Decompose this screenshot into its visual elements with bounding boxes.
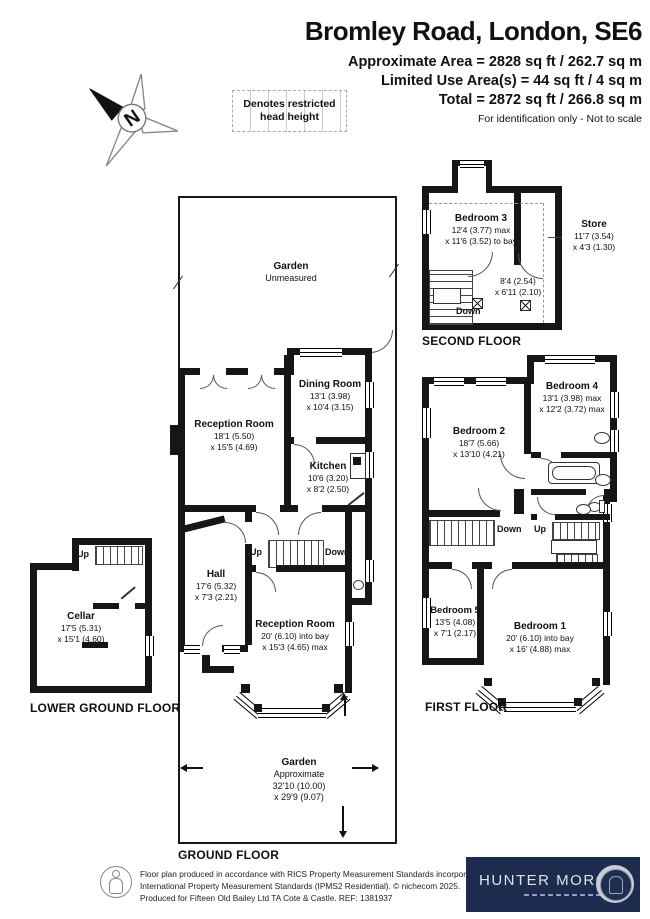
room-label-reception-1: Reception Room 18'1 (5.50) x 15'5 (4.69) xyxy=(188,418,280,453)
leader-line xyxy=(548,237,562,238)
room-name: Garden xyxy=(252,756,346,769)
room-dim: 8'4 (2.54) xyxy=(486,276,550,287)
room-dim: x 10'4 (3.15) xyxy=(296,402,364,413)
wall xyxy=(610,355,617,495)
stairs xyxy=(429,520,495,546)
wall xyxy=(422,510,500,517)
wall xyxy=(486,160,492,188)
room-name: Bedroom 1 xyxy=(492,620,588,633)
window xyxy=(460,160,484,168)
wall xyxy=(422,186,429,330)
entrance-arrow-head xyxy=(340,693,348,700)
room-label-bedroom-2: Bedroom 2 18'7 (5.66) x 13'10 (4.21) xyxy=(435,425,523,460)
door-arc xyxy=(537,497,555,515)
stair-landing xyxy=(551,540,597,554)
stairs-up-label: Up xyxy=(77,549,89,559)
room-label-kitchen: Kitchen 10'6 (3.20) x 8'2 (2.50) xyxy=(296,460,360,495)
door-leaf xyxy=(121,586,136,599)
wall xyxy=(30,563,37,693)
window xyxy=(365,382,374,408)
dim-arrow-down xyxy=(339,831,347,838)
stair-landing xyxy=(433,288,461,304)
wall xyxy=(291,437,294,444)
page-title: Bromley Road, London, SE6 xyxy=(250,16,642,47)
room-dim: 32'10 (10.00) xyxy=(252,781,346,793)
wall xyxy=(30,563,79,570)
bay-post xyxy=(322,704,330,712)
room-dim: 20' (6.10) into bay xyxy=(492,633,588,644)
wall xyxy=(145,538,152,693)
wall xyxy=(93,603,119,609)
restricted-height-line xyxy=(543,203,544,323)
room-dim: x 29'9 (9.07) xyxy=(252,792,346,804)
stairs-down-label: Down xyxy=(497,524,522,534)
wall xyxy=(512,562,610,569)
wall xyxy=(531,452,541,458)
room-note: Unmeasured xyxy=(246,273,336,285)
wall xyxy=(345,512,352,598)
room-name: Reception Room xyxy=(188,418,280,431)
room-label-store: Store 11'7 (3.54) x 4'3 (1.30) xyxy=(562,218,626,253)
wall xyxy=(135,603,145,609)
rooflight-icon xyxy=(520,300,531,311)
room-dim: x 15'3 (4.65) max xyxy=(247,642,343,653)
room-label-cellar: Cellar 17'5 (5.31) x 15'1 (4.60) xyxy=(44,610,118,645)
room-name: Dining Room xyxy=(296,378,364,391)
logo-crest-shield xyxy=(609,876,623,894)
room-dim: x 7'3 (2.21) xyxy=(186,592,246,603)
room-dim: 12'4 (3.77) max xyxy=(438,225,524,236)
window xyxy=(300,348,342,357)
restricted-height-line xyxy=(429,203,543,204)
landing-dims: 8'4 (2.54) x 6'11 (2.10) xyxy=(486,276,550,298)
room-dim: 13'1 (3.98) xyxy=(296,391,364,402)
room-dim: x 15'1 (4.60) xyxy=(44,634,118,645)
floorplan-page: Bromley Road, London, SE6 Approximate Ar… xyxy=(0,0,650,919)
second-floor-label: SECOND FLOOR xyxy=(422,334,521,348)
window xyxy=(145,636,154,656)
wall xyxy=(245,512,252,522)
hunter-morgan-logo: HUNTER MORGAN xyxy=(466,857,640,912)
room-dim: 10'6 (3.20) xyxy=(296,473,360,484)
bathtub-icon xyxy=(548,462,600,484)
wall xyxy=(280,505,298,512)
door-arc xyxy=(468,252,493,277)
room-name: Hall xyxy=(186,568,246,581)
room-label-bedroom-5: Bedroom 5 13'5 (4.08) x 7'1 (2.17) xyxy=(427,605,483,639)
wall xyxy=(284,437,291,512)
person-body xyxy=(109,878,123,894)
wall xyxy=(316,437,372,444)
room-dim: x 11'6 (3.52) to bay xyxy=(438,236,524,247)
wall xyxy=(604,489,610,495)
wall xyxy=(422,562,452,569)
bay-post xyxy=(241,684,250,693)
room-label-hall: Hall 17'6 (5.32) x 7'3 (2.21) xyxy=(186,568,246,603)
room-dim: x 6'11 (2.10) xyxy=(486,287,550,298)
dim-arrow-line xyxy=(342,806,344,832)
room-dim: x 16' (4.88) max xyxy=(492,644,588,655)
dim-arrow-right xyxy=(372,764,379,772)
room-label-bedroom-4: Bedroom 4 13'1 (3.98) max x 12'2 (3.72) … xyxy=(530,380,614,415)
room-dim: 17'6 (5.32) xyxy=(186,581,246,592)
bay-window xyxy=(504,702,576,712)
room-dim: x 7'1 (2.17) xyxy=(427,628,483,639)
room-dim: 20' (6.10) into bay xyxy=(247,631,343,642)
wall xyxy=(527,355,545,362)
stairs xyxy=(95,546,143,565)
window xyxy=(184,645,200,654)
approximate-area: Approximate Area = 2828 sq ft / 262.7 sq… xyxy=(250,53,642,72)
room-dim: x 13'10 (4.21) xyxy=(435,449,523,460)
window xyxy=(345,622,354,646)
sink-icon xyxy=(594,432,610,444)
wall xyxy=(472,562,492,569)
door-arc xyxy=(478,488,501,511)
legend-text: Denotes restricted head height xyxy=(233,98,346,123)
room-name: Bedroom 2 xyxy=(435,425,523,438)
wall xyxy=(531,489,586,495)
wall xyxy=(422,658,484,665)
dim-arrow-left xyxy=(180,764,187,772)
garden-bottom-label: Garden Approximate 32'10 (10.00) x 29'9 … xyxy=(252,756,346,804)
room-name: Reception Room xyxy=(247,618,343,631)
room-label-bedroom-1: Bedroom 1 20' (6.10) into bay x 16' (4.8… xyxy=(492,620,588,655)
room-dim: 18'1 (5.50) xyxy=(188,431,280,442)
wall xyxy=(531,514,537,520)
window xyxy=(365,560,374,582)
window xyxy=(545,355,595,364)
wall xyxy=(276,565,345,572)
room-dim: 18'7 (5.66) xyxy=(435,438,523,449)
window xyxy=(224,645,240,654)
door-arc xyxy=(452,569,472,589)
window xyxy=(434,377,464,386)
chimney xyxy=(170,425,178,455)
porch-step xyxy=(202,666,234,673)
room-name: Garden xyxy=(246,260,336,273)
stairs-up-label: Up xyxy=(534,524,546,534)
bay-post xyxy=(574,698,582,706)
first-floor-label: FIRST FLOOR xyxy=(425,700,507,714)
compass-icon: N xyxy=(86,74,178,166)
wall xyxy=(464,377,476,384)
toilet-tank xyxy=(599,500,605,513)
room-name: Bedroom 4 xyxy=(530,380,614,393)
disclaimer-line-3: Produced for Fifteen Old Bailey Ltd TA C… xyxy=(140,892,480,904)
wall xyxy=(486,186,562,193)
room-dim: x 4'3 (1.30) xyxy=(562,242,626,253)
room-dim: 13'5 (4.08) xyxy=(427,617,483,628)
toilet-icon xyxy=(353,580,364,590)
room-label-reception-2: Reception Room 20' (6.10) into bay x 15'… xyxy=(247,618,343,653)
logo-tagline xyxy=(524,894,602,896)
stairs-down-label: Down xyxy=(456,306,481,316)
wall xyxy=(178,505,256,512)
wall xyxy=(561,452,610,458)
room-dim: 13'1 (3.98) max xyxy=(530,393,614,404)
room-dim: x 15'5 (4.69) xyxy=(188,442,280,453)
wall xyxy=(555,186,562,330)
room-name: Bedroom 3 xyxy=(438,212,524,225)
room-dim: 17'5 (5.31) xyxy=(44,623,118,634)
garden-top-label: Garden Unmeasured xyxy=(246,260,336,285)
room-name: Kitchen xyxy=(296,460,360,473)
window xyxy=(422,408,431,438)
wall xyxy=(284,355,291,437)
wall xyxy=(226,368,248,375)
room-label-bedroom-3: Bedroom 3 12'4 (3.77) max x 11'6 (3.52) … xyxy=(438,212,524,247)
sink-icon xyxy=(595,474,611,486)
ground-floor-label: GROUND FLOOR xyxy=(178,848,279,862)
room-dim: x 12'2 (3.72) max xyxy=(530,404,614,415)
bay-post xyxy=(592,678,600,686)
wall xyxy=(72,538,152,545)
room-name: Bedroom 5 xyxy=(427,605,483,617)
window xyxy=(422,210,431,234)
window xyxy=(610,430,619,452)
disclaimer-line-1: Floor plan produced in accordance with R… xyxy=(140,868,480,880)
room-dim: 11'7 (3.54) xyxy=(562,231,626,242)
bay-post xyxy=(334,684,343,693)
bay-post xyxy=(254,704,262,712)
wall xyxy=(452,160,458,188)
limited-use-area: Limited Use Area(s) = 44 sq ft / 4 sq m xyxy=(250,72,642,91)
room-name: Store xyxy=(562,218,626,231)
door-arc xyxy=(492,569,512,589)
person-head xyxy=(112,870,120,878)
wall xyxy=(603,495,610,685)
wall xyxy=(514,489,524,514)
room-note: Approximate xyxy=(252,769,346,781)
window xyxy=(365,452,374,478)
dim-arrow-line xyxy=(352,767,372,769)
disclaimer: Floor plan produced in accordance with R… xyxy=(140,868,480,904)
person-icon xyxy=(100,866,132,898)
lower-ground-floor-label: LOWER GROUND FLOOR xyxy=(30,701,180,715)
front-door-gap xyxy=(200,645,222,652)
wall xyxy=(322,505,372,512)
stairs xyxy=(268,540,324,568)
wall xyxy=(506,377,527,384)
room-dim: x 8'2 (2.50) xyxy=(296,484,360,495)
bathtub-inner xyxy=(552,466,596,480)
bay-post xyxy=(484,678,492,686)
window xyxy=(603,612,612,636)
disclaimer-line-2: International Property Measurement Stand… xyxy=(140,880,480,892)
window xyxy=(476,377,506,386)
restricted-head-height-legend: Denotes restricted head height xyxy=(232,90,347,132)
entrance-arrow-line xyxy=(344,700,346,716)
wall xyxy=(30,686,152,693)
wall xyxy=(555,514,610,520)
room-name: Cellar xyxy=(44,610,118,623)
stairs xyxy=(552,522,600,540)
room-label-dining: Dining Room 13'1 (3.98) x 10'4 (3.15) xyxy=(296,378,364,413)
bay-window xyxy=(258,708,326,718)
logo-crest-icon xyxy=(596,865,634,903)
